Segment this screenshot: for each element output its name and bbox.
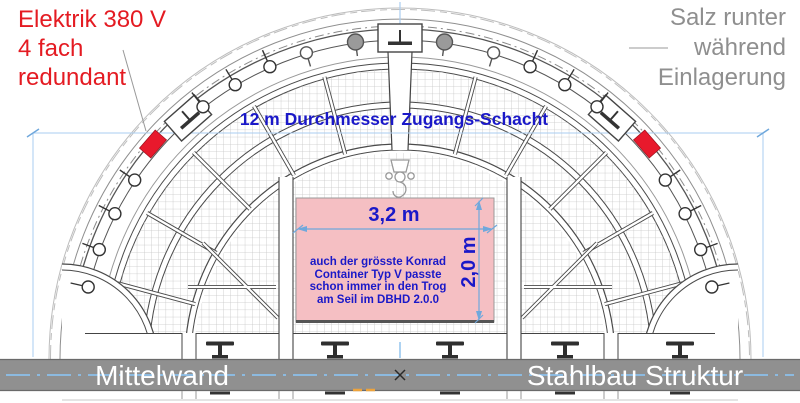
annotation-elektrik: Elektrik 380 V 4 fach redundant [18, 5, 166, 92]
trough-note: auch der grösste Konrad Container Typ V … [298, 256, 458, 306]
below-bar-structure [62, 390, 738, 400]
trough-width-label: 3,2 m [344, 204, 444, 227]
electric-box-left [139, 130, 166, 158]
cad-drawing-canvas: Elektrik 380 V 4 fach redundant Salz run… [0, 0, 800, 403]
electric-box-right [633, 130, 660, 158]
shaft-throat [388, 52, 412, 150]
annotation-salz-runter: Salz runter während Einlagerung [618, 3, 786, 93]
trough-wall-left [279, 177, 293, 359]
trough-wall-right [507, 177, 521, 359]
trough-height-label: 2,0 m [458, 227, 478, 297]
shaft-diameter-label: 12 m Durchmesser Zugangs-Schacht [236, 109, 552, 130]
footer-label-mittelwand: Mittelwand [82, 361, 242, 391]
footer-label-stahlbau-struktur: Stahlbau Struktur [515, 361, 755, 391]
anchor-block-apex [378, 24, 422, 52]
